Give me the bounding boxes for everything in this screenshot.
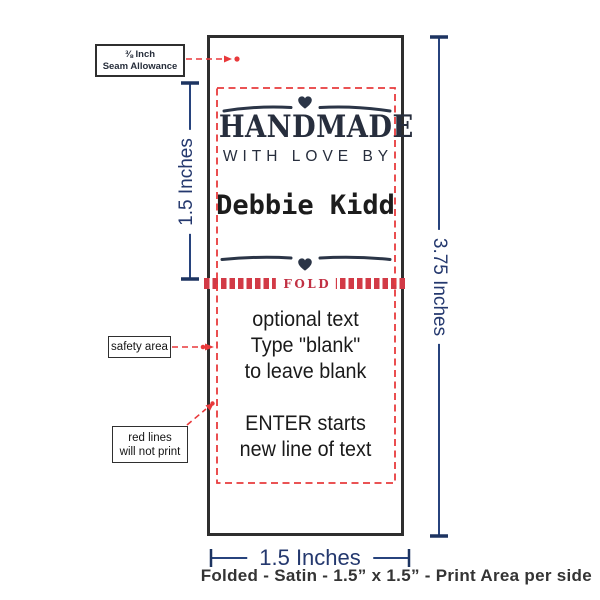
optional-text-line: Type "blank" <box>213 333 398 359</box>
product-spec-caption: Folded - Satin - 1.5” x 1.5” - Print Are… <box>201 566 592 586</box>
label-preview-diagram: HANDMADE WITH LOVE BY Debbie Kidd FOLD o… <box>0 0 600 600</box>
seam-allowance-line: ⅜ Inch <box>125 49 155 61</box>
red-lines-line: will not print <box>120 445 181 459</box>
enter-hint-line: ENTER starts <box>213 411 398 437</box>
safety-area-callout: safety area <box>108 336 171 358</box>
enter-hint-block: ENTER starts new line of text <box>213 411 398 463</box>
design-subtitle: WITH LOVE BY <box>207 148 404 166</box>
safety-area-label: safety area <box>111 341 168 353</box>
dimension-label-right: 3.75 Inches <box>426 230 452 344</box>
fold-line-band: FOLD <box>204 278 408 289</box>
optional-text-line: to leave blank <box>213 359 398 385</box>
red-lines-line: red lines <box>128 431 171 445</box>
design-title: HANDMADE <box>219 109 392 145</box>
red-lines-callout: red lines will not print <box>112 426 188 463</box>
design-name: Debbie Kidd <box>207 190 404 221</box>
optional-text-block: optional text Type "blank" to leave blan… <box>213 307 398 385</box>
dimension-label-left: 1.5 Inches <box>174 130 200 234</box>
optional-text-line: optional text <box>213 307 398 333</box>
seam-allowance-callout: ⅜ Inch Seam Allowance <box>95 44 185 77</box>
fold-label: FOLD <box>276 276 336 292</box>
marker-dot <box>201 345 206 350</box>
seam-allowance-line: Seam Allowance <box>103 61 178 73</box>
enter-hint-line: new line of text <box>213 437 398 463</box>
redlines-connector-line <box>187 409 206 425</box>
